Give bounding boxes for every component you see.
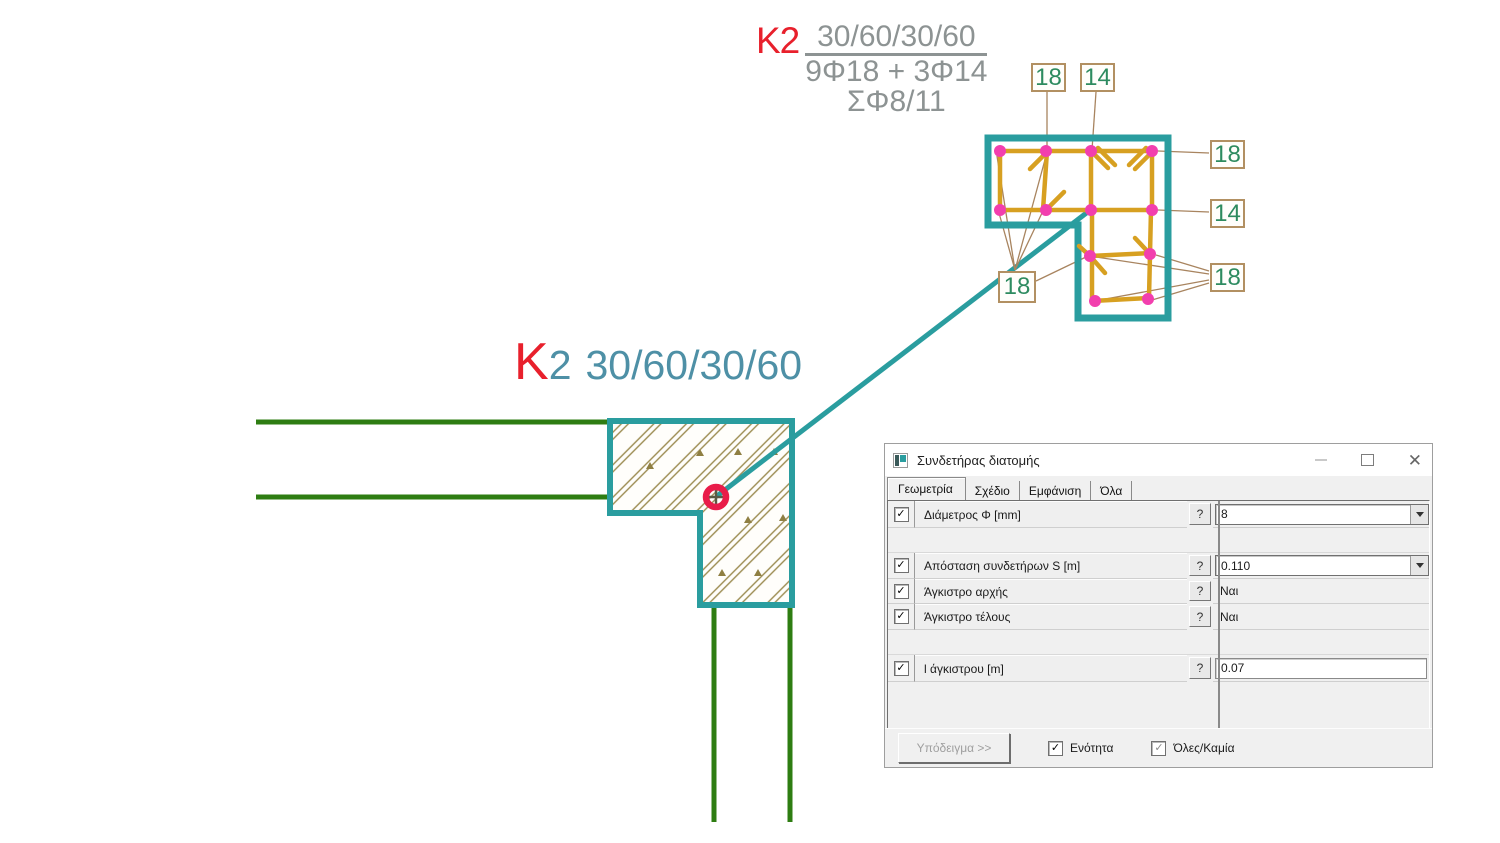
tab-all[interactable]: Όλα	[1091, 481, 1132, 500]
row-checkbox-diameter[interactable]: ✓	[894, 507, 909, 522]
plan-mark-number: 2	[549, 342, 572, 388]
help-button-hook-length[interactable]: ?	[1189, 657, 1211, 679]
rebar-marker-right-lower[interactable]: 14	[1210, 199, 1245, 228]
stirrup-text: ΣΦ8/11	[805, 87, 987, 117]
all-none-checkbox-label: Όλες/Καμία	[1173, 741, 1234, 755]
hook-length-input[interactable]: 0.07	[1215, 658, 1427, 679]
cad-canvas: K2 30/60/30/60 9Φ18 + 3Φ14 ΣΦ8/11 K230/6…	[0, 0, 1500, 843]
row-checkbox-hook-start[interactable]: ✓	[894, 584, 909, 599]
tab-geometry[interactable]: Γεωμετρία	[887, 477, 966, 500]
stirrup-properties-dialog: Συνδετήρας διατομής ✕ Γεωμετρία Σχέδιο Ε…	[884, 443, 1433, 768]
row-label-hook-start: Άγκιστρο αρχής	[915, 579, 1187, 604]
row-label-hook-length: l άγκιστρου [m]	[915, 655, 1187, 682]
dialog-titlebar[interactable]: Συνδετήρας διατομής ✕	[885, 444, 1432, 476]
close-icon[interactable]: ✕	[1408, 452, 1422, 469]
column-dimensions: 30/60/30/60	[805, 22, 987, 56]
section-annotation: K2 30/60/30/60 9Φ18 + 3Φ14 ΣΦ8/11	[756, 22, 987, 117]
dialog-footer: Υπόδειγμα >> ✓ Ενότητα ✓ Όλες/Καμία	[885, 728, 1432, 767]
row-label-diameter: Διάμετρος Φ [mm]	[915, 501, 1187, 528]
help-button-diameter[interactable]: ?	[1189, 503, 1211, 525]
row-label-spacing: Απόσταση συνδετήρων S [m]	[915, 553, 1187, 579]
hook-start-value[interactable]: Ναι	[1213, 579, 1429, 604]
maximize-icon[interactable]	[1361, 454, 1374, 466]
template-button[interactable]: Υπόδειγμα >>	[898, 733, 1010, 763]
grid-splitter[interactable]	[1218, 501, 1220, 731]
dropdown-arrow-icon[interactable]	[1410, 556, 1428, 575]
minimize-icon[interactable]	[1315, 459, 1327, 461]
section-checkbox-label: Ενότητα	[1070, 741, 1113, 755]
tab-drawing[interactable]: Σχέδιο	[966, 481, 1020, 500]
row-checkbox-spacing[interactable]: ✓	[894, 558, 909, 573]
diameter-value: 8	[1216, 507, 1410, 521]
help-button-hook-end[interactable]: ?	[1189, 606, 1211, 627]
rebar-marker-bottom-left[interactable]: 18	[998, 271, 1036, 303]
dialog-title: Συνδετήρας διατομής	[917, 453, 1040, 468]
row-checkbox-hook-length[interactable]: ✓	[894, 661, 909, 676]
property-grid: ✓ Διάμετρος Φ [mm] ? 8 ✓ Απόσταση συνδετ…	[887, 500, 1430, 731]
dropdown-arrow-icon[interactable]	[1410, 505, 1428, 524]
rebar-marker-top-left[interactable]: 18	[1031, 63, 1066, 92]
diameter-dropdown[interactable]: 8	[1215, 504, 1429, 525]
rebar-marker-top-right[interactable]: 14	[1080, 63, 1115, 92]
help-button-hook-start[interactable]: ?	[1189, 581, 1211, 601]
row-checkbox-hook-end[interactable]: ✓	[894, 609, 909, 624]
all-none-checkbox[interactable]: ✓	[1151, 741, 1166, 756]
reinforcement-text: 9Φ18 + 3Φ14	[805, 57, 987, 87]
section-checkbox[interactable]: ✓	[1048, 741, 1063, 756]
plan-annotation: K230/60/30/60	[514, 336, 802, 391]
spacing-dropdown[interactable]: 0.110	[1215, 555, 1429, 576]
dialog-icon	[893, 453, 908, 468]
plan-mark-letter: K	[514, 333, 549, 391]
tab-appearance[interactable]: Εμφάνιση	[1020, 481, 1091, 500]
column-plan-shape[interactable]	[610, 421, 792, 605]
tab-strip: Γεωμετρία Σχέδιο Εμφάνιση Όλα	[885, 476, 1432, 500]
rebar-marker-bottom-right[interactable]: 18	[1210, 263, 1245, 292]
crosshair-marker[interactable]	[704, 485, 728, 509]
hook-end-value[interactable]: Ναι	[1213, 604, 1429, 630]
help-button-spacing[interactable]: ?	[1189, 555, 1211, 576]
row-label-hook-end: Άγκιστρο τέλους	[915, 604, 1187, 630]
column-mark: K2	[756, 22, 799, 60]
plan-dimensions: 30/60/30/60	[586, 342, 803, 388]
spacing-value: 0.110	[1216, 559, 1410, 573]
rebar-marker-right-upper[interactable]: 18	[1210, 140, 1245, 169]
